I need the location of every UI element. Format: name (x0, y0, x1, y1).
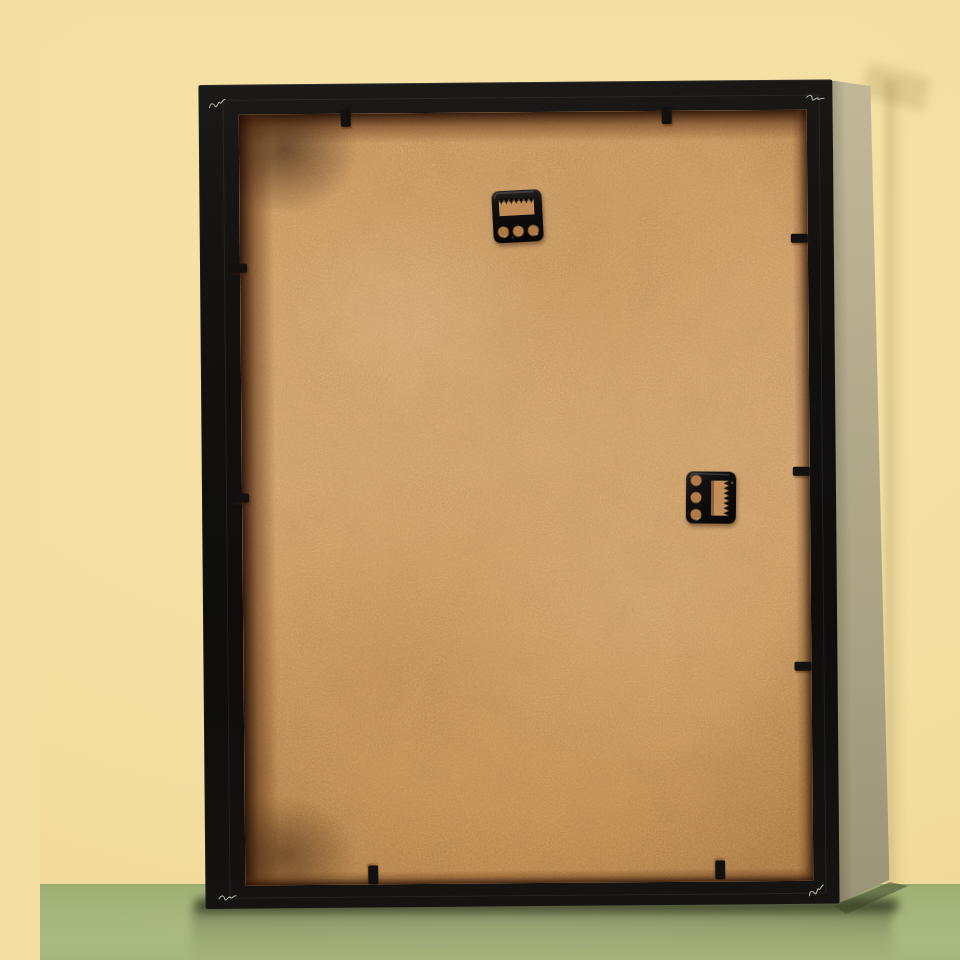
retaining-tab-left-1 (230, 264, 247, 273)
retaining-tab-left-2 (232, 494, 249, 503)
hanger-nail-hole (691, 475, 702, 486)
retaining-tab-right-2 (793, 467, 810, 476)
retaining-tab-bottom-1 (368, 865, 378, 884)
picture-frame-back (198, 79, 897, 911)
scene: Rear view of an empty black picture fram… (40, 16, 960, 960)
hanger-nail-hole (690, 492, 701, 503)
sawtooth-hanger-top (490, 187, 545, 246)
retaining-tab-top-2 (662, 107, 672, 124)
sawtooth-hanger-side (685, 469, 737, 525)
retaining-tab-right-1 (791, 234, 808, 243)
corner-scratch-bottom-left (215, 882, 243, 910)
frame-reflection (192, 904, 892, 960)
retaining-tab-top-1 (341, 110, 351, 127)
retaining-tab-right-3 (794, 662, 811, 671)
frame-moulding-black (198, 80, 839, 910)
retaining-tab-bottom-2 (715, 860, 725, 879)
corner-shadow-bottom-left (239, 795, 356, 886)
corner-scratch-top-left (204, 88, 231, 115)
